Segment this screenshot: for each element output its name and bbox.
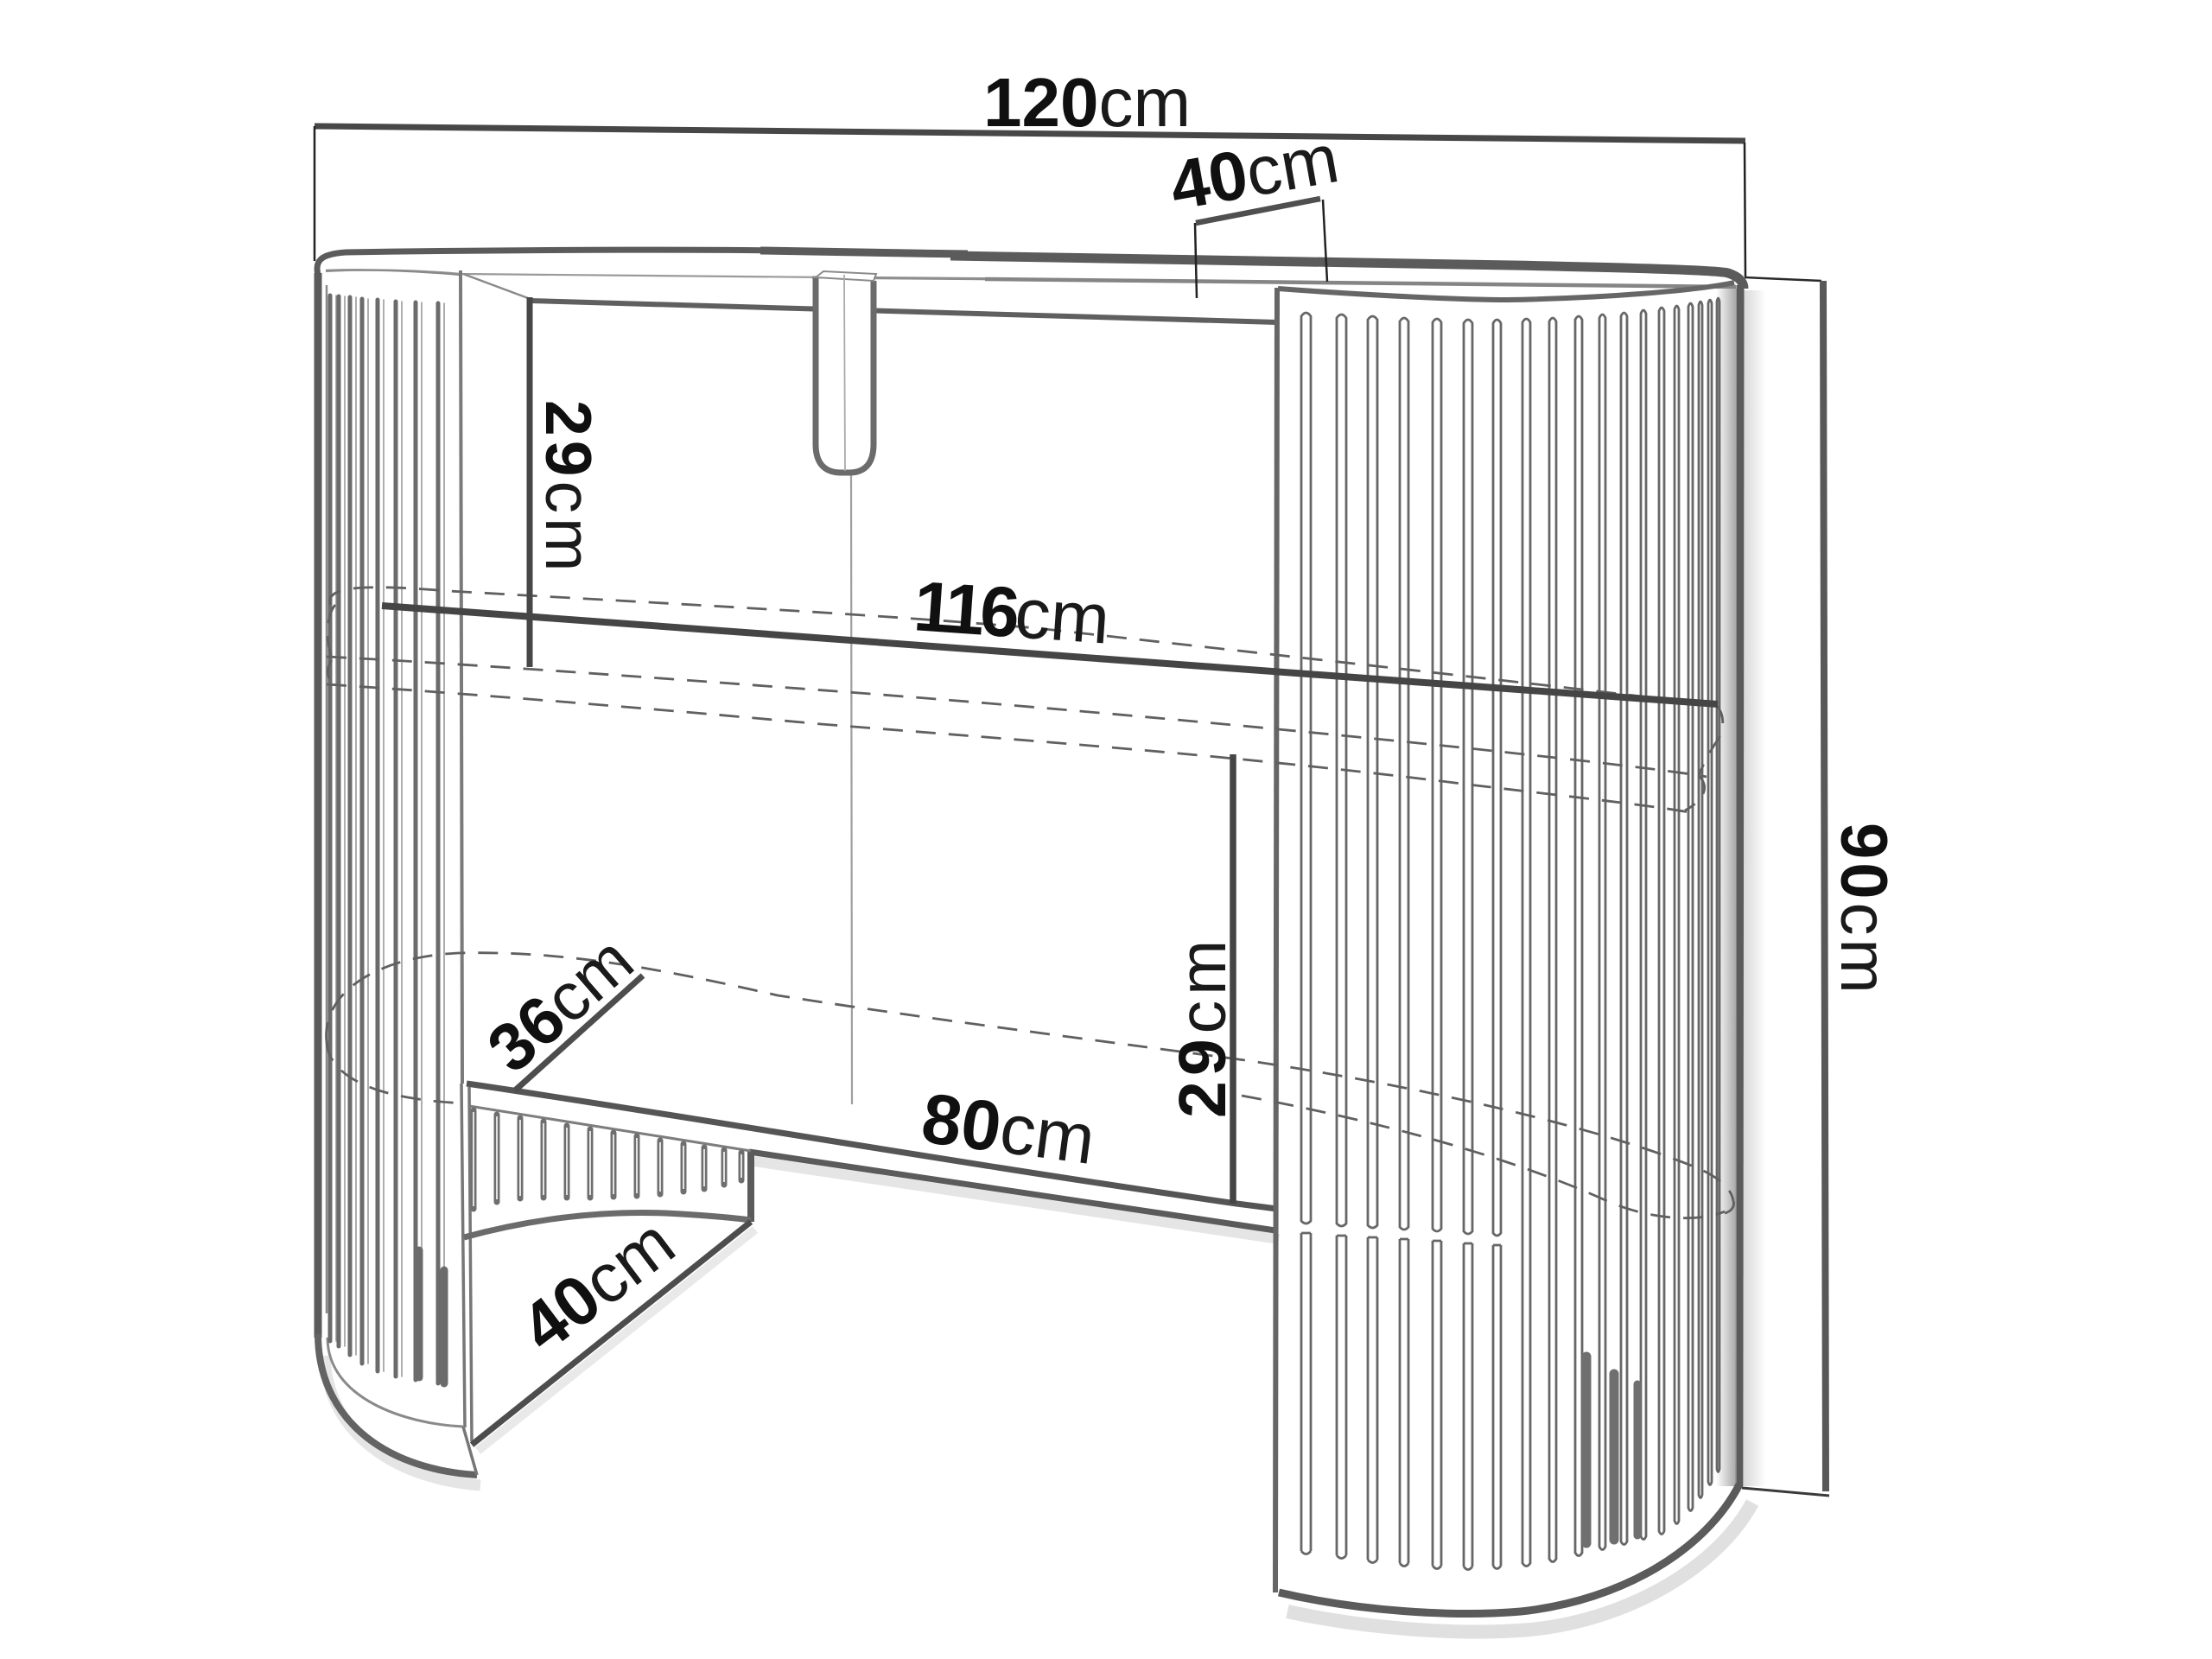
svg-text:29cm: 29cm (1166, 935, 1240, 1118)
svg-text:80cm: 80cm (918, 1079, 1100, 1179)
svg-text:120cm: 120cm (983, 64, 1191, 141)
svg-text:29cm: 29cm (532, 400, 605, 575)
svg-text:116cm: 116cm (912, 567, 1112, 659)
svg-text:36cm: 36cm (473, 921, 647, 1087)
svg-text:90cm: 90cm (1827, 823, 1900, 997)
